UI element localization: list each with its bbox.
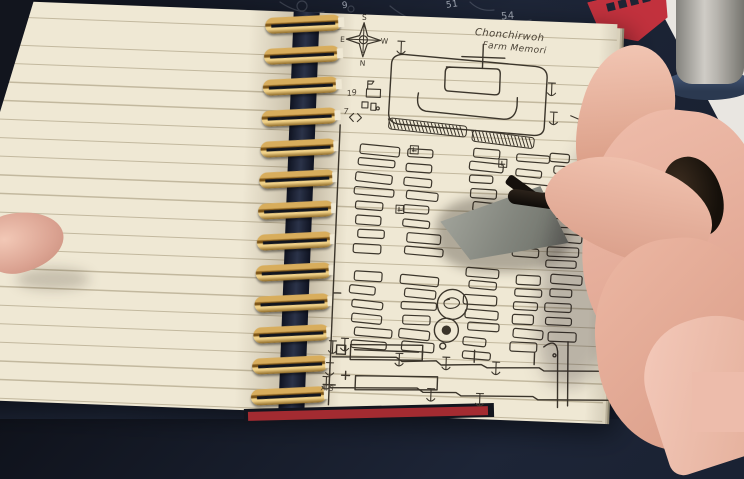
right-hand: [0, 0, 744, 419]
wrist: [692, 372, 744, 432]
photo-scene: { "scene":{"width":744,"height":419,"des…: [0, 0, 744, 419]
